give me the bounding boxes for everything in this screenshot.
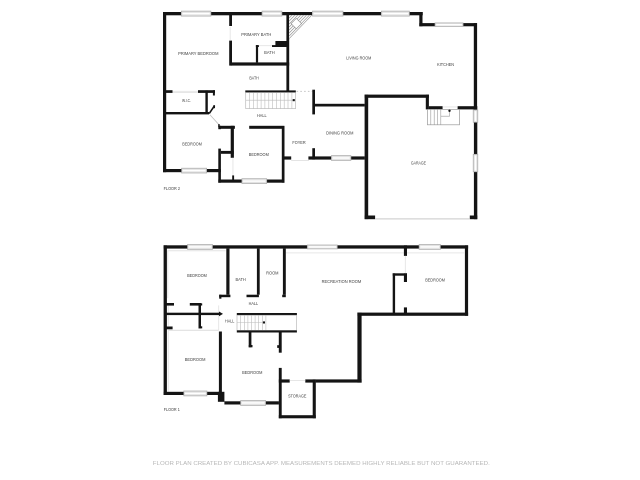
svg-text:HALL: HALL	[225, 318, 235, 324]
svg-text:BEDROOM: BEDROOM	[425, 277, 445, 283]
svg-text:BEDROOM: BEDROOM	[185, 357, 206, 363]
svg-text:W.I.C.: W.I.C.	[182, 98, 191, 104]
svg-text:GARAGE: GARAGE	[411, 160, 427, 166]
svg-text:BEDROOM: BEDROOM	[182, 142, 202, 148]
svg-text:LIVING ROOM: LIVING ROOM	[346, 56, 371, 62]
svg-text:KITCHEN: KITCHEN	[437, 62, 454, 68]
svg-text:STORAGE: STORAGE	[288, 393, 307, 399]
svg-text:DINING ROOM: DINING ROOM	[326, 130, 353, 136]
svg-text:FLOOR PLAN CREATED BY CUBICASA: FLOOR PLAN CREATED BY CUBICASA APP. MEAS…	[153, 461, 490, 467]
svg-text:FLOOR 1: FLOOR 1	[164, 407, 180, 413]
svg-text:FLOOR 2: FLOOR 2	[164, 186, 181, 192]
svg-text:BATH: BATH	[236, 277, 247, 283]
svg-text:FOYER: FOYER	[292, 140, 306, 146]
svg-text:ROOM: ROOM	[266, 271, 278, 277]
svg-text:BATH: BATH	[264, 50, 275, 56]
svg-text:HALL: HALL	[249, 301, 259, 307]
svg-text:HALL: HALL	[257, 113, 267, 119]
svg-text:RECREATION ROOM: RECREATION ROOM	[322, 279, 362, 285]
svg-text:BEDROOM: BEDROOM	[249, 152, 269, 158]
svg-text:BEDROOM: BEDROOM	[242, 370, 262, 376]
svg-text:PRIMARY BATH: PRIMARY BATH	[241, 32, 271, 38]
svg-text:BATH: BATH	[249, 75, 259, 81]
svg-text:PRIMARY BEDROOM: PRIMARY BEDROOM	[178, 51, 218, 57]
svg-text:BEDROOM: BEDROOM	[187, 273, 207, 279]
